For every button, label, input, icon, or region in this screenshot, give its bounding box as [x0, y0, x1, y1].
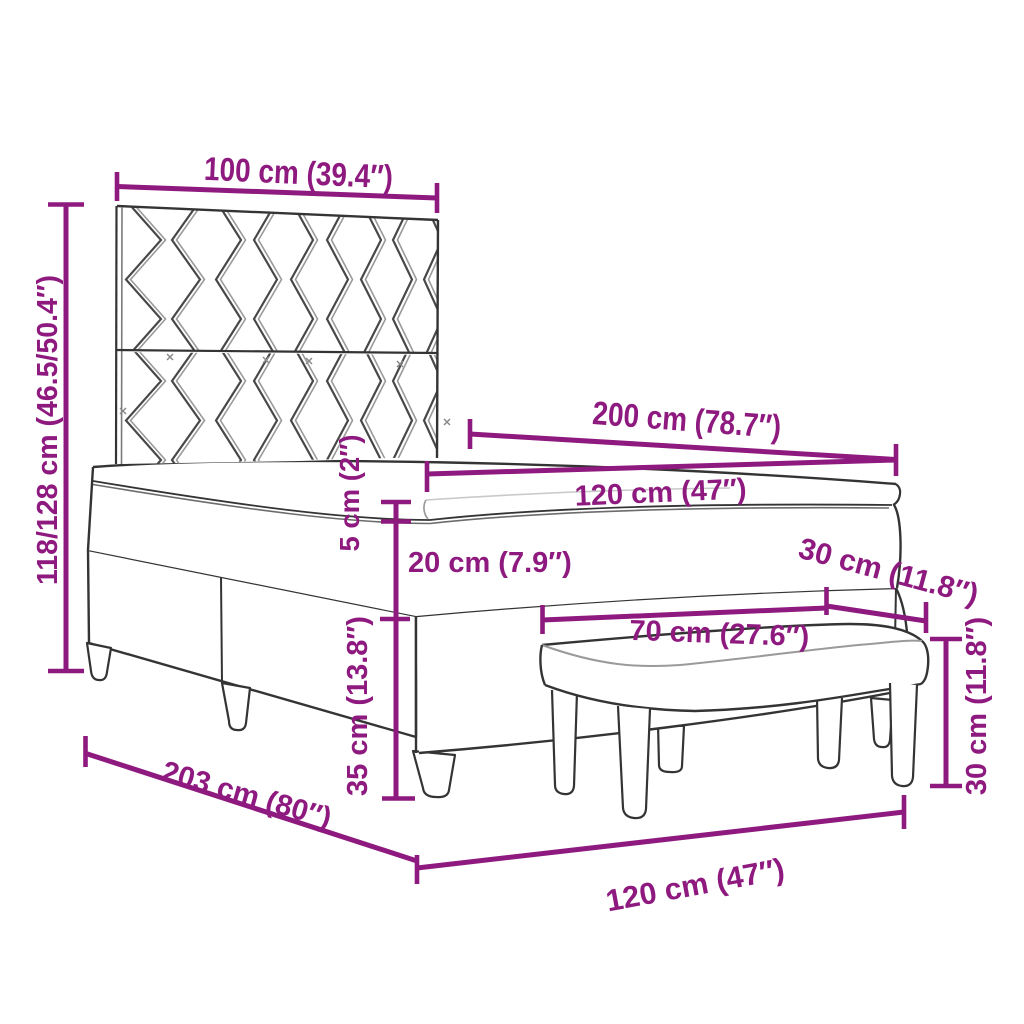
svg-text:118/128 cm (46.5/50.4″): 118/128 cm (46.5/50.4″)	[32, 275, 64, 585]
svg-text:70 cm (27.6″): 70 cm (27.6″)	[629, 615, 810, 653]
svg-text:5 cm (2″): 5 cm (2″)	[334, 434, 365, 551]
svg-text:20 cm (7.9″): 20 cm (7.9″)	[408, 547, 572, 579]
svg-text:35 cm (13.8″): 35 cm (13.8″)	[342, 616, 374, 796]
svg-text:30 cm (11.8″): 30 cm (11.8″)	[961, 617, 993, 795]
